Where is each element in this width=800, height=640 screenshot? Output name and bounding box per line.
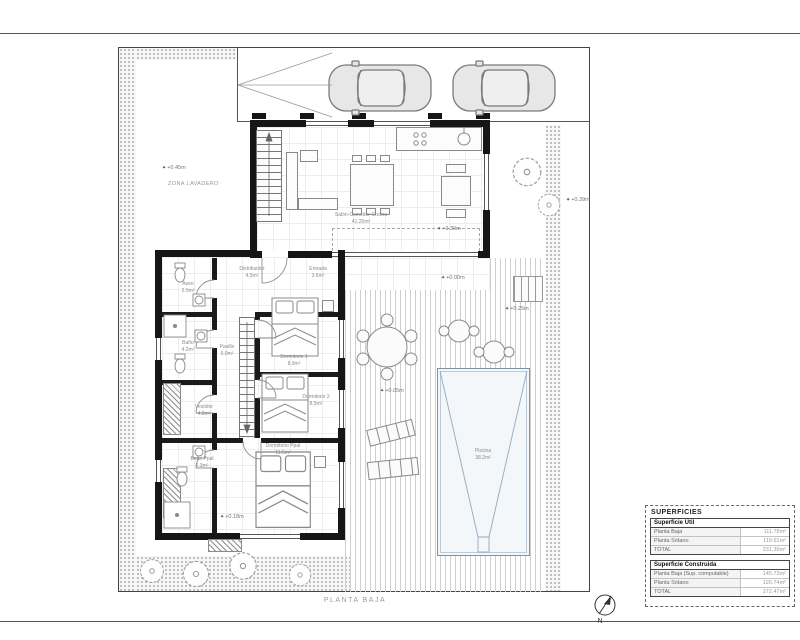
row-label: Planta Sótano [651, 537, 740, 545]
table-section-header: Superficie Construida [651, 561, 789, 570]
room-label-dormitorio-ppal: Dormitorio Ppal 11.5m² [254, 443, 312, 456]
room-label-entrada: Entrada 3.6m² [296, 266, 340, 279]
partition [217, 438, 243, 443]
drawing-sheet: ZONA LAVADERO ✦+0.45m ✦+0.30m ✦+0.00m ✦+… [0, 0, 800, 640]
room-label-pasillo: Pasillo 5.0m² [206, 344, 248, 357]
row-value: 231.39m² [740, 546, 789, 554]
room-area: 4.2m² [168, 347, 208, 354]
benchmark-icon: ✦ [162, 165, 166, 171]
wall [338, 508, 345, 540]
wall [478, 251, 490, 258]
table-row: Planta Sótano 126.74m² [651, 579, 789, 588]
row-label: Planta Sótano [651, 579, 740, 587]
wall [338, 428, 345, 462]
zona-lavadero-label: ZONA LAVADERO [168, 181, 219, 187]
room-area: 3.6m² [296, 273, 340, 280]
beam-tick [300, 113, 314, 119]
partition [212, 468, 217, 533]
window [156, 460, 161, 482]
table-row: TOTAL 272.47m² [651, 588, 789, 596]
row-value: 272.47m² [740, 588, 789, 596]
garden-strip-right [545, 125, 561, 591]
frame-line-bottom [0, 621, 800, 622]
window [240, 534, 300, 539]
room-area: 6.3m² [180, 463, 224, 470]
dining-table [350, 164, 394, 206]
level-marker: ✦+0.18m [220, 514, 244, 520]
partition [255, 372, 338, 377]
row-value: 119.61m² [740, 537, 789, 545]
superficie-construida-table: Superficie Construida Planta Baja (Sup. … [650, 560, 790, 597]
wall [348, 120, 374, 127]
room-area: 41.20m² [315, 219, 407, 226]
sofa [286, 152, 298, 210]
room-area: 8.5m² [296, 401, 336, 408]
room-label-salon: Salón-Comedor-Cocina 41.20m² [315, 212, 407, 225]
wardrobe [163, 468, 181, 518]
row-label: TOTAL [651, 588, 740, 596]
window [339, 320, 344, 358]
pool-area: 38.2m² [461, 455, 505, 462]
row-label: TOTAL [651, 546, 740, 554]
window [484, 154, 489, 210]
window [339, 390, 344, 428]
partition [212, 312, 217, 330]
room-label-distribuidor: Distribuidor 4.5m² [222, 266, 282, 279]
garden-strip-bottom [136, 556, 350, 591]
wall [430, 120, 490, 127]
room-label-bano: Baño 4.2m² [168, 340, 208, 353]
room-area: 4.5m² [222, 273, 282, 280]
benchmark-icon: ✦ [566, 197, 570, 203]
level-value: +0.45m [167, 165, 186, 171]
level-value: +0.25m [510, 306, 529, 312]
room-label-dormitorio2: Dormitorio 2 8.5m² [296, 394, 336, 407]
frame-line-top [0, 33, 800, 34]
pool-label: Piscina 38.2m² [461, 448, 505, 461]
north-label: N [590, 618, 610, 625]
level-value: +0.30m [442, 226, 461, 232]
level-marker: ✦+0.25m [505, 306, 529, 312]
level-value: +0.05m [385, 388, 404, 394]
benchmark-icon: ✦ [220, 514, 224, 520]
beam-tick [476, 113, 490, 119]
garden-strip-topleft [136, 48, 236, 60]
window [156, 338, 161, 360]
row-value: 126.74m² [740, 579, 789, 587]
level-marker: ✦+0.30m [437, 226, 461, 232]
partition [255, 398, 260, 438]
north-arrow-icon [595, 595, 615, 615]
partition [212, 258, 217, 280]
table-row: Planta Baja 111.78m² [651, 528, 789, 537]
pool [437, 368, 530, 556]
room-label-aseo: Aseo 2.0m² [168, 281, 208, 294]
partition [255, 312, 338, 317]
window [339, 462, 344, 508]
garden-strip-left [119, 48, 136, 591]
row-value: 111.78m² [740, 528, 789, 536]
window [306, 121, 348, 126]
porch-floor [345, 258, 490, 290]
row-label: Planta Baja (Sup. computable) [651, 570, 740, 578]
window [374, 121, 430, 126]
chair [352, 155, 362, 162]
level-marker: ✦+0.00m [441, 275, 465, 281]
table-row: TOTAL 231.39m² [651, 546, 789, 554]
chair [366, 155, 376, 162]
level-value: +0.18m [225, 514, 244, 520]
wall [155, 250, 257, 257]
beam-tick [252, 113, 266, 119]
partition [162, 438, 212, 443]
nightstand [314, 456, 326, 468]
level-value: +0.39m [571, 197, 590, 203]
level-marker: ✦+0.05m [380, 388, 404, 394]
partition [212, 413, 217, 450]
room-label-vestidor: Vestidor 4.8m² [184, 404, 224, 417]
wall [338, 358, 345, 390]
stair-salon [256, 130, 282, 222]
table-row: Planta Baja (Sup. computable) 145.73m² [651, 570, 789, 579]
partition [162, 312, 217, 317]
partition [212, 298, 217, 312]
chair [380, 155, 390, 162]
sofa [298, 198, 338, 210]
table-row: Planta Sótano 119.61m² [651, 537, 789, 546]
wall [155, 482, 162, 540]
superficie-util-table: Superficie Útil Planta Baja 111.78m² Pla… [650, 518, 790, 555]
superficies-table: SUPERFICIES Superficie Útil Planta Baja … [645, 505, 795, 607]
nightstand [322, 300, 334, 312]
equipment-pad [208, 539, 242, 552]
wall [155, 360, 162, 460]
coffee-table [441, 176, 471, 206]
level-marker: ✦+0.45m [162, 165, 186, 171]
table-section-header: Superficie Útil [651, 519, 789, 528]
benchmark-icon: ✦ [437, 226, 441, 232]
room-area: 5.0m² [206, 351, 248, 358]
level-value: +0.00m [446, 275, 465, 281]
row-label: Planta Baja [651, 528, 740, 536]
benchmark-icon: ✦ [505, 306, 509, 312]
wall [155, 250, 162, 338]
beam-tick [352, 113, 366, 119]
superficies-title: SUPERFICIES [651, 509, 790, 516]
benchmark-icon: ✦ [380, 388, 384, 394]
wall [338, 250, 345, 320]
room-area: 2.0m² [168, 288, 208, 295]
wall [250, 120, 306, 127]
sliding-window [332, 252, 478, 257]
kitchen-counter [396, 127, 482, 151]
room-label-dormitorio1: Dormitorio 1 8.9m² [268, 354, 320, 367]
driveway-gate-line [237, 48, 238, 122]
level-marker: ✦+0.39m [566, 197, 590, 203]
wall [288, 251, 332, 258]
partition [255, 312, 260, 320]
benchmark-icon: ✦ [441, 275, 445, 281]
armchair [446, 209, 466, 218]
room-area: 4.8m² [184, 411, 224, 418]
row-value: 145.73m² [740, 570, 789, 578]
room-area: 11.5m² [254, 450, 312, 457]
room-area: 8.9m² [268, 361, 320, 368]
armchair [446, 164, 466, 173]
armchair [300, 150, 318, 162]
wall [483, 120, 490, 154]
plan-title: PLANTA BAJA [280, 597, 430, 604]
room-label-bano-ppal: Baño Ppal 6.3m² [180, 456, 224, 469]
wardrobe [163, 383, 181, 435]
garden-steps [513, 276, 543, 302]
stair-basement [239, 317, 255, 438]
beam-tick [428, 113, 442, 119]
